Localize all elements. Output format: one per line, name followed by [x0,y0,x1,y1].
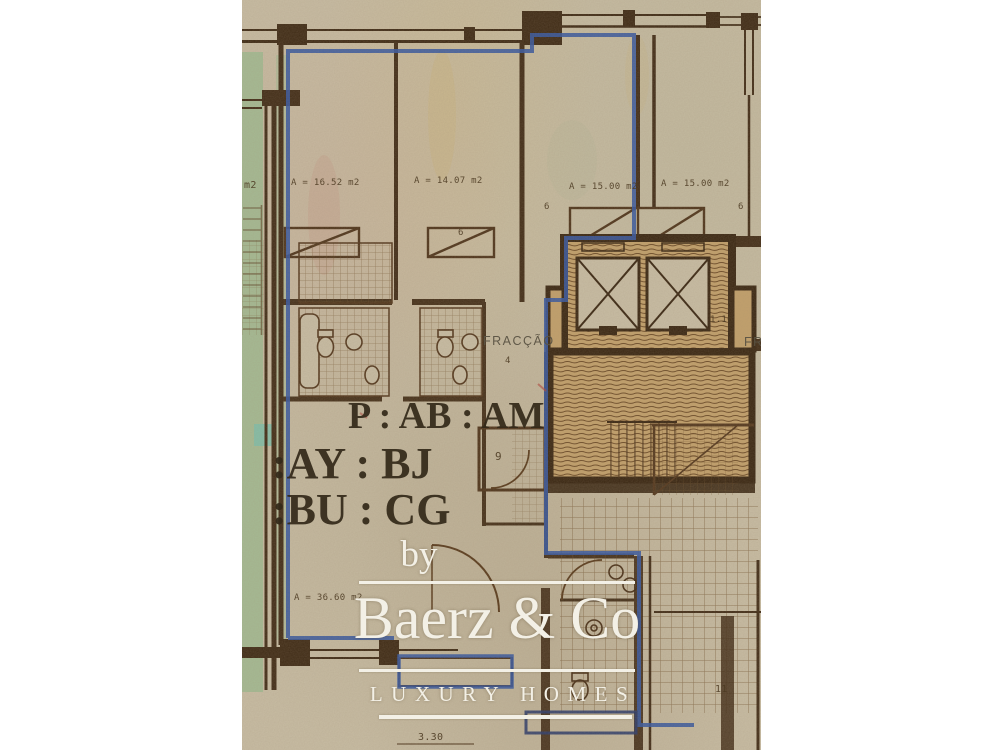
dim-label-330: 3.30 [418,732,443,743]
dim-label-116: 1.16 [710,315,733,325]
fraccao-label: FRACÇÃO [483,334,555,348]
room-number-6b: 6 [544,202,550,212]
room-number-9: 9 [495,450,502,463]
logo-tagline: LUXURY HOMES [354,682,644,707]
area-label-m2-partial: m2 [244,180,257,191]
room-number-6a: 6 [458,228,464,238]
logo-brand-name: Baerz & Co [352,585,642,651]
logo-divider-middle [359,669,635,672]
unit-code-line1: P : AB : AM [348,394,544,438]
fraccao-label-right-partial: FR [744,335,761,349]
area-label-1407: A = 14.07 m2 [414,176,483,186]
area-label-1500-left: A = 15.00 m2 [569,182,638,192]
logo-divider-top [359,581,635,584]
unit-code-line2: :AY : BJ [272,438,433,489]
logo-by-text: by [379,533,459,576]
logo-divider-bottom [379,715,632,719]
floorplan-photo: m2 A = 16.52 m2 A = 14.07 m2 A = 15.00 m… [242,0,761,750]
area-label-1500-right: A = 15.00 m2 [661,179,730,189]
page: m2 A = 16.52 m2 A = 14.07 m2 A = 15.00 m… [0,0,1000,750]
room-number-6c: 6 [738,202,744,212]
room-number-11: 11 [715,684,728,695]
room-number-4: 4 [505,356,511,366]
unit-code-line3: :BU : CG [272,484,450,535]
area-label-1652: A = 16.52 m2 [291,178,360,188]
